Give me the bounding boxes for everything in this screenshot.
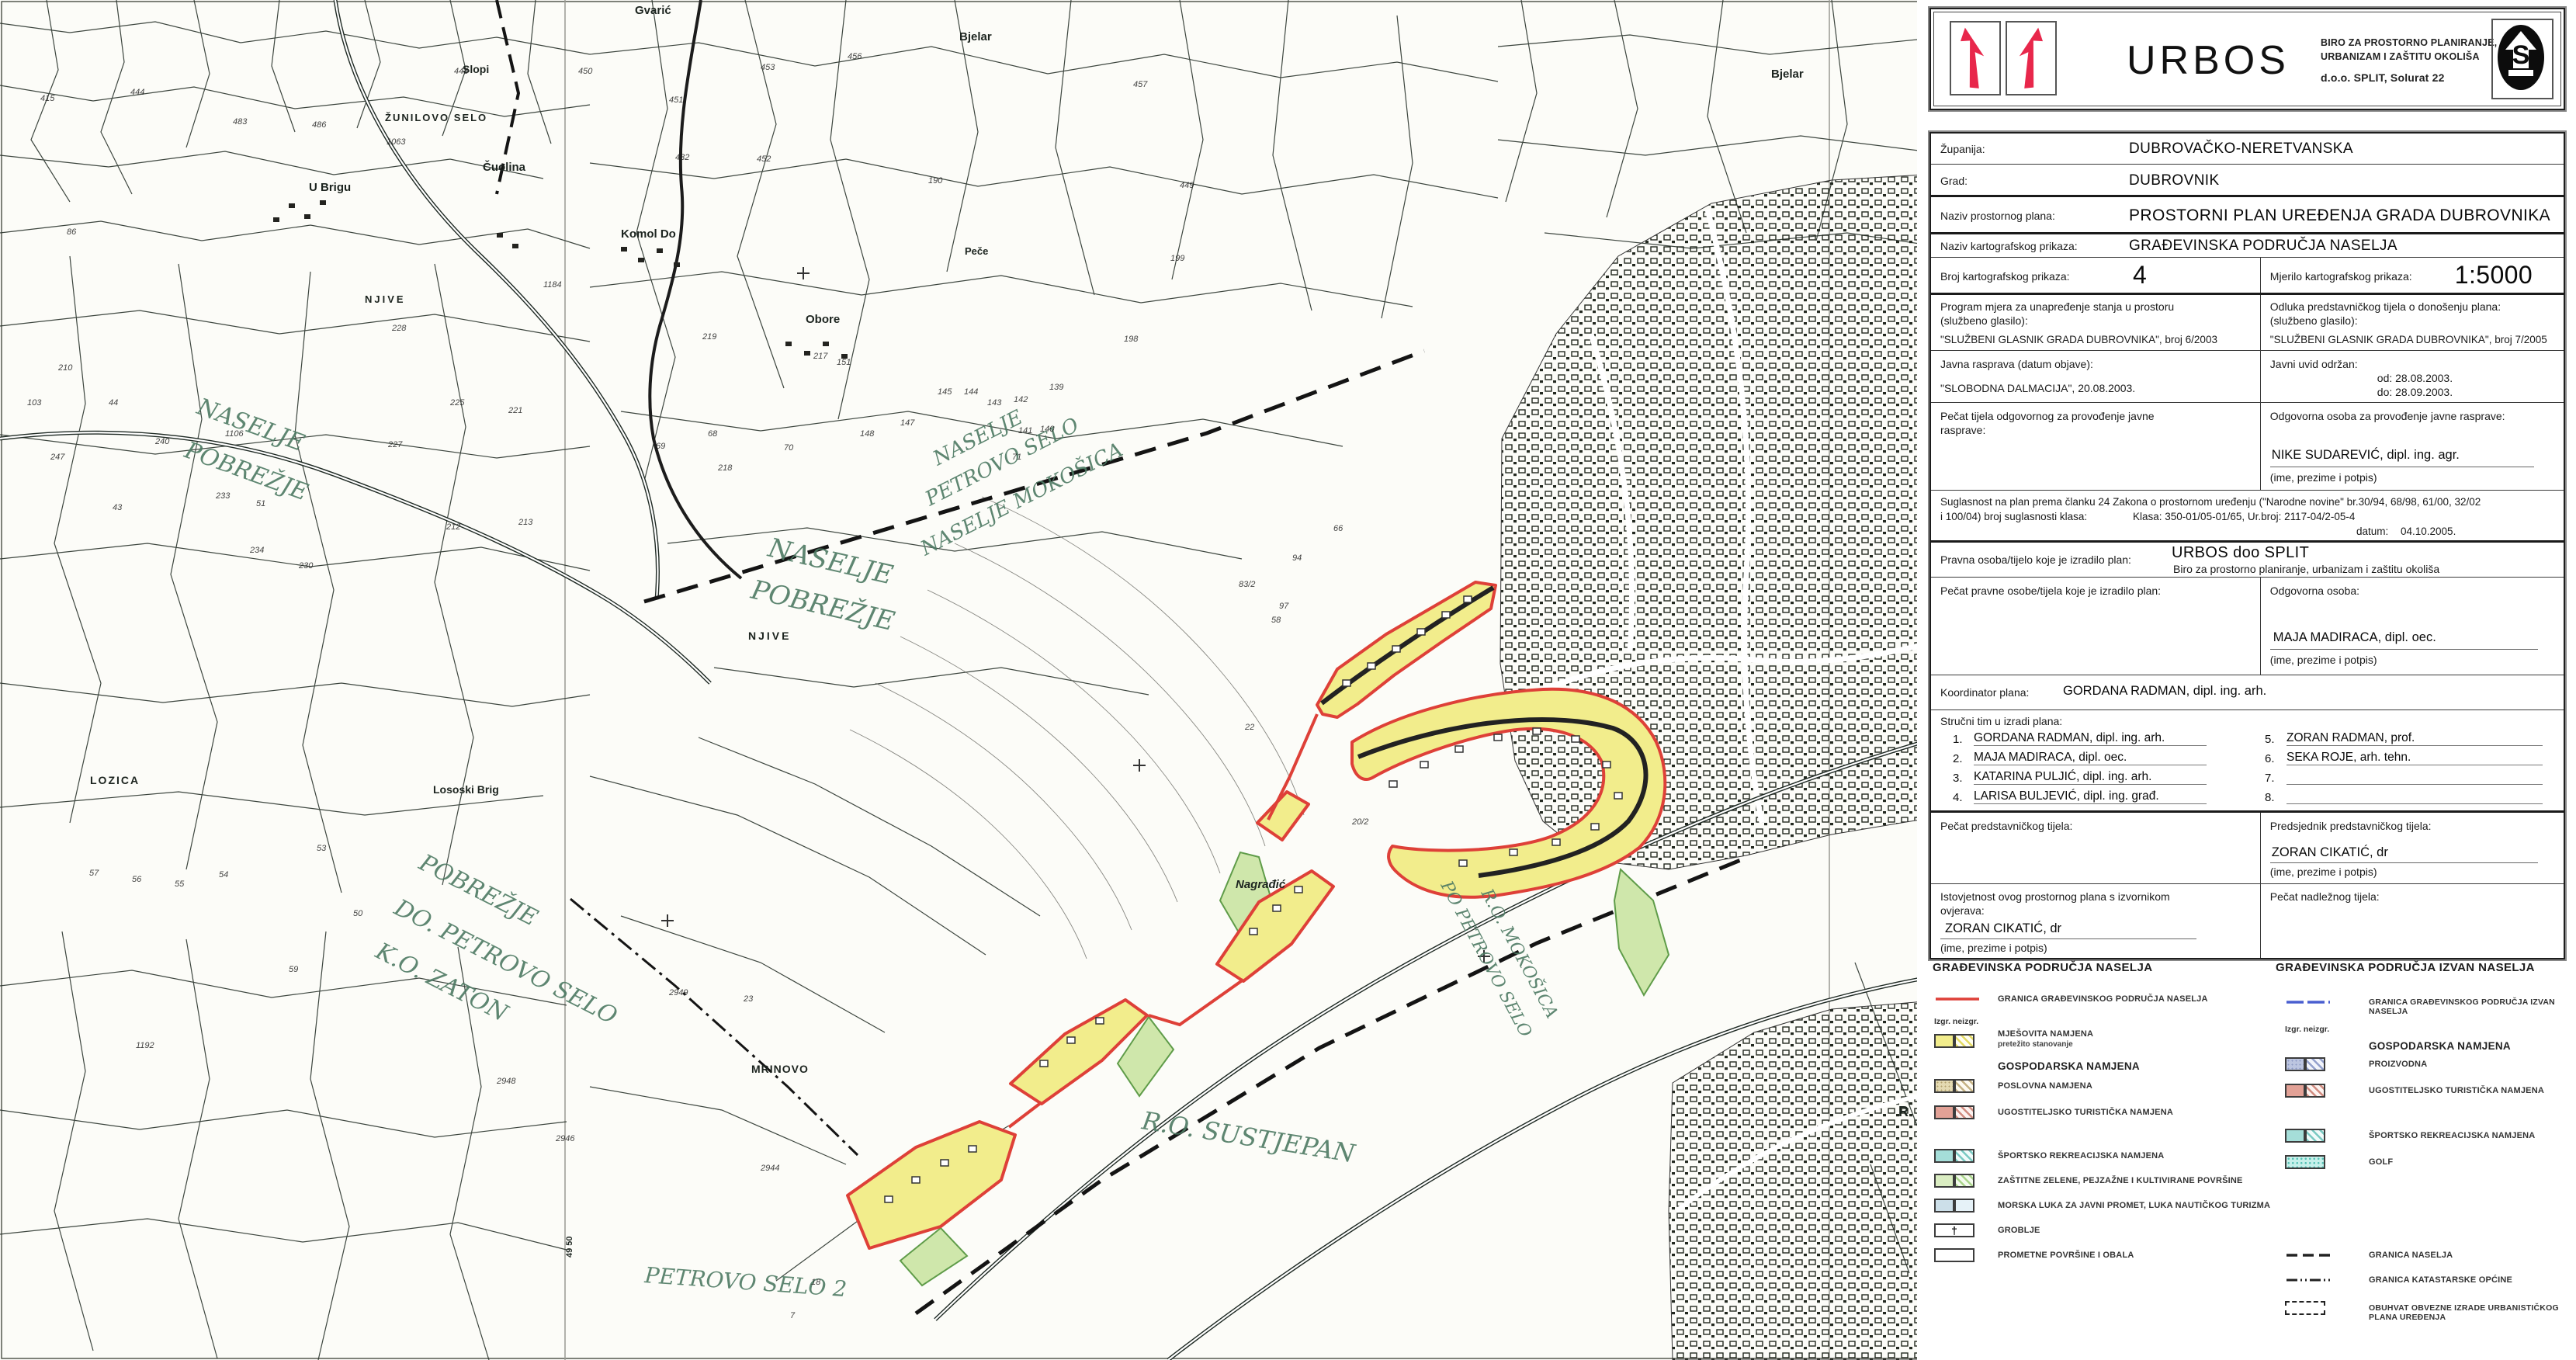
company-seal: S bbox=[2491, 19, 2553, 99]
parcel-number: 1184 bbox=[543, 280, 562, 290]
row-istovjetnost: Istovjetnost ovog prostornog plana s izv… bbox=[1931, 884, 2564, 958]
tim-num: 7. bbox=[2265, 772, 2275, 785]
parcel-number: 444 bbox=[130, 88, 144, 97]
istovjetnost-label2: ovjerava: bbox=[1940, 904, 1985, 917]
parcel-number: 456 bbox=[848, 52, 862, 61]
rasprava-value: "SLOBODNA DALMACIJA", 20.08.2003. bbox=[1940, 382, 2135, 394]
row-zupanija: Županija: DUBROVAČKO-NERETVANSKA bbox=[1931, 134, 2564, 165]
parcel-number: 58 bbox=[1271, 616, 1281, 625]
company-sub2: URBANIZAM I ZAŠTITU OKOLIŠA bbox=[2321, 51, 2480, 62]
parcel-number: 234 bbox=[249, 546, 264, 555]
parcel-number: 199 bbox=[1170, 254, 1184, 263]
parcel-number: 483 bbox=[233, 117, 248, 127]
legend-blue-line-swatch bbox=[2285, 998, 2332, 1006]
tim-num: 8. bbox=[2265, 791, 2275, 804]
plan-sheet: Gvarić Bjelar Bjelar U Brigu Slopi Čuoli… bbox=[0, 0, 2576, 1360]
suglasnost-datum-label: datum: bbox=[2356, 526, 2388, 537]
row-pecat-tijela: Pečat tijela odgovornog za provođenje ja… bbox=[1931, 403, 2564, 491]
parcel-number: 230 bbox=[298, 561, 314, 571]
logo-arrow-box-right bbox=[2006, 21, 2057, 95]
map-label: Lososki Brig bbox=[433, 783, 499, 796]
parcel-number: 147 bbox=[900, 418, 915, 428]
arrow-up-left-icon bbox=[1951, 23, 1996, 91]
signature-line bbox=[2270, 467, 2534, 467]
tim-name: KATARINA PULJIĆ, dipl. ing. arh. bbox=[1974, 770, 2207, 785]
pravna-value2: Biro za prostorno planiranje, urbanizam … bbox=[2173, 563, 2439, 575]
parcel-number: 56 bbox=[132, 875, 142, 884]
map-label: Peče bbox=[965, 245, 988, 257]
parcel-number: 97 bbox=[1279, 602, 1289, 611]
swatch-prometne bbox=[1934, 1248, 1974, 1262]
legend-golf-label: GOLF bbox=[2369, 1157, 2393, 1167]
parcel-number: 66 bbox=[1333, 524, 1343, 533]
swatch-morska-2 bbox=[1954, 1199, 1974, 1213]
parcel-number: 71 bbox=[1012, 453, 1021, 462]
map-label: NJIVE bbox=[365, 293, 406, 305]
swatch-mjesovita-izgr bbox=[1934, 1034, 1954, 1048]
cell-mjerilo: Mjerilo kartografskog prikaza: 1:5000 bbox=[2260, 258, 2564, 293]
koordinator-value: GORDANA RADMAN, dipl. ing. arh. bbox=[2063, 684, 2266, 699]
parcel-number: 57 bbox=[89, 869, 99, 878]
swatch-poslovna-izgr bbox=[1934, 1079, 1954, 1093]
parcel-number: 50 bbox=[353, 909, 363, 918]
grad-value: DUBROVNIK bbox=[2129, 172, 2220, 189]
koordinator-label: Koordinator plana: bbox=[1940, 686, 2029, 699]
parcel-number: 415 bbox=[40, 94, 55, 103]
row-pecat-predstavnickog: Pečat predstavničkog tijela: Predsjednik… bbox=[1931, 813, 2564, 884]
row-suglasnost: Suglasnost na plan prema članku 24 Zakon… bbox=[1931, 491, 2564, 543]
parcel-number: 448 bbox=[454, 67, 469, 76]
parcel-number: 53 bbox=[317, 844, 327, 853]
uvid-do: do: 28.09.2003. bbox=[2377, 386, 2453, 398]
odg-osoba-name: NIKE SUDAREVIĆ, dipl. ing. agr. bbox=[2272, 448, 2460, 463]
parcel-number: 225 bbox=[449, 398, 465, 408]
cell-pecat-nadleznog: Pečat nadležnog tijela: bbox=[2260, 884, 2564, 958]
signature-line bbox=[1940, 938, 2196, 939]
title-block-form: Županija: DUBROVAČKO-NERETVANSKA Grad: D… bbox=[1929, 132, 2565, 959]
tim-name: ZORAN RADMAN, prof. bbox=[2287, 731, 2543, 746]
signature-line bbox=[2270, 649, 2538, 650]
legend-zastitne-label: ZAŠTITNE ZELENE, PEJZAŽNE I KULTIVIRANE … bbox=[1998, 1176, 2243, 1185]
parcel-number: 144 bbox=[964, 387, 978, 397]
cell-predsjednik: Predsjednik predstavničkog tijela: ZORAN… bbox=[2260, 813, 2564, 883]
parcel-number: 2946 bbox=[555, 1134, 575, 1143]
legend-sportsko2-label: ŠPORTSKO REKREACIJSKA NAMJENA bbox=[2369, 1131, 2535, 1140]
parcel-number: 219 bbox=[702, 332, 716, 342]
tim-name: LARISA BULJEVIĆ, dipl. ing. građ. bbox=[1974, 789, 2207, 804]
legend-sportsko-label: ŠPORTSKO REKREACIJSKA NAMJENA bbox=[1998, 1151, 2164, 1161]
map-label: Komol Do bbox=[621, 227, 676, 241]
tim-num: 3. bbox=[1953, 772, 1963, 785]
legend-granica-naselja2-label: GRANICA NASELJA bbox=[2369, 1251, 2453, 1260]
legend-granica-naselja-line bbox=[2285, 1251, 2332, 1259]
legend-ugostiteljsko-label: UGOSTITELJSKO TURISTIČKA NAMJENA bbox=[1998, 1108, 2173, 1117]
map-label: 49 50 bbox=[565, 1236, 574, 1258]
odluka-label2: (službeno glasilo): bbox=[2270, 314, 2358, 327]
parcel-number: 1063 bbox=[387, 137, 406, 147]
zupanija-label: Županija: bbox=[1940, 143, 1985, 155]
pecat-nadleznog-label: Pečat nadležnog tijela: bbox=[2270, 890, 2380, 903]
swatch-golf bbox=[2285, 1155, 2325, 1169]
parcel-number: 2944 bbox=[760, 1164, 779, 1173]
legend-right-title: GRAĐEVINSKA PODRUČJA IZVAN NASELJA bbox=[2276, 961, 2535, 974]
parcel-number: 148 bbox=[860, 429, 875, 439]
parcel-number: 247 bbox=[50, 453, 65, 462]
parcel-number: 217 bbox=[813, 352, 828, 361]
parcel-number: 145 bbox=[938, 387, 952, 397]
uvid-od: od: 28.08.2003. bbox=[2377, 372, 2453, 384]
legend-red-line-swatch bbox=[1934, 995, 1981, 1003]
legend-prometne-label: PROMETNE POVRŠINE I OBALA bbox=[1998, 1251, 2134, 1260]
parcel-number: 450 bbox=[578, 67, 593, 76]
legend-granica-naselja-label: GRANICA GRAĐEVINSKOG PODRUČJA NASELJA bbox=[1998, 994, 2208, 1004]
sign-hint: (ime, prezime i potpis) bbox=[2270, 471, 2377, 484]
swatch-groblje-cross-icon: † bbox=[1934, 1223, 1974, 1237]
pravna-value1: URBOS doo SPLIT bbox=[2172, 544, 2309, 562]
predsjednik-name: ZORAN CIKATIĆ, dr bbox=[2272, 845, 2388, 860]
parcel-number: 486 bbox=[312, 120, 327, 130]
parcel-number: 212 bbox=[446, 522, 460, 532]
program-value: "SLUŽBENI GLASNIK GRADA DUBROVNIKA", bro… bbox=[1940, 334, 2217, 345]
rasprava-label: Javna rasprava (datum objave): bbox=[1940, 358, 2093, 370]
legend-groblje-label: GROBLJE bbox=[1998, 1226, 2040, 1235]
map-canvas: Gvarić Bjelar Bjelar U Brigu Slopi Čuoli… bbox=[0, 0, 1925, 1360]
legend-mjesovita-label: MJEŠOVITA NAMJENA bbox=[1998, 1029, 2093, 1039]
parcel-number: 141 bbox=[1018, 426, 1032, 435]
parcel-number: 7 bbox=[790, 1311, 796, 1320]
logo-header: URBOS BIRO ZA PROSTORNO PLANIRANJE, URBA… bbox=[1929, 8, 2565, 110]
row-strucni-tim: Stručni tim u izradi plana: 1. GORDANA R… bbox=[1931, 710, 2564, 813]
istovjetnost-name: ZORAN CIKATIĆ, dr bbox=[1945, 921, 2061, 936]
tim-label: Stručni tim u izradi plana: bbox=[1940, 715, 2062, 727]
sign-hint: (ime, prezime i potpis) bbox=[2270, 866, 2377, 878]
naziv-prikaza-value: GRAĐEVINSKA PODRUČJA NASELJA bbox=[2129, 238, 2397, 255]
tim-name bbox=[2287, 789, 2543, 804]
swatch-morska-1 bbox=[1934, 1199, 1954, 1213]
parcel-number: 218 bbox=[717, 463, 733, 473]
parcel-number: 68 bbox=[708, 429, 718, 439]
odgovorna-label: Odgovorna osoba: bbox=[2270, 585, 2359, 597]
parcel-number: 94 bbox=[1292, 553, 1302, 563]
map-label: R bbox=[1898, 1104, 1909, 1119]
tim-num: 1. bbox=[1953, 733, 1963, 746]
tim-name: SEKA ROJE, arh. tehn. bbox=[2287, 751, 2543, 765]
map-label: Nagrađić bbox=[1236, 878, 1286, 891]
legend-obuhvat-swatch bbox=[2285, 1301, 2325, 1315]
row-broj-mjerilo: Broj kartografskog prikaza: 4 Mjerilo ka… bbox=[1931, 258, 2564, 295]
company-sub3: d.o.o. SPLIT, Solurat 22 bbox=[2321, 71, 2445, 84]
parcel-number: 22 bbox=[1244, 723, 1254, 732]
pravna-label: Pravna osoba/tijelo koje je izradilo pla… bbox=[1940, 553, 2131, 566]
odluka-value: "SLUŽBENI GLASNIK GRADA DUBROVNIKA", bro… bbox=[2270, 334, 2547, 345]
uvid-label: Javni uvid održan: bbox=[2270, 358, 2358, 370]
swatch-ugostiteljsko-izgr bbox=[1934, 1105, 1954, 1119]
map-label: MRINOVO bbox=[751, 1063, 809, 1075]
legend-morska-label: MORSKA LUKA ZA JAVNI PROMET, LUKA NAUTIČ… bbox=[1998, 1201, 2270, 1210]
legend-proizvodna-label: PROIZVODNA bbox=[2369, 1060, 2427, 1069]
zupanija-value: DUBROVAČKO-NERETVANSKA bbox=[2129, 141, 2353, 158]
parcel-number: 103 bbox=[27, 398, 42, 408]
cell-odg-osoba: Odgovorna osoba za provođenje javne rasp… bbox=[2260, 403, 2564, 490]
parcel-number: 70 bbox=[784, 443, 794, 453]
naziv-plana-label: Naziv prostornog plana: bbox=[1940, 210, 2055, 222]
parcel-number: 240 bbox=[154, 437, 170, 446]
swatch-poslovna-neizgr bbox=[1954, 1079, 1974, 1093]
map-label: LOZICA bbox=[90, 774, 140, 786]
parcel-number: 228 bbox=[391, 324, 407, 333]
tim-name: MAJA MADIRACA, dipl. oec. bbox=[1974, 751, 2207, 765]
parcel-number: 233 bbox=[215, 491, 231, 501]
broj-value: 4 bbox=[2133, 261, 2147, 290]
company-name: URBOS bbox=[2127, 37, 2290, 84]
grad-label: Grad: bbox=[1940, 175, 1968, 187]
map-label: Bjelar bbox=[959, 30, 992, 43]
parcel-number: 54 bbox=[219, 870, 228, 879]
parcel-number: 451 bbox=[669, 95, 683, 105]
parcel-number: 143 bbox=[987, 398, 1002, 408]
map-label: Bjelar bbox=[1771, 68, 1804, 81]
parcel-number: 457 bbox=[1133, 80, 1148, 89]
pecat-pred-label: Pečat predstavničkog tijela: bbox=[1940, 820, 2072, 832]
row-koordinator: Koordinator plana: GORDANA RADMAN, dipl.… bbox=[1931, 675, 2564, 710]
parcel-number: 139 bbox=[1049, 383, 1063, 392]
company-sub1: BIRO ZA PROSTORNO PLANIRANJE, bbox=[2321, 37, 2497, 48]
program-label1: Program mjera za unapređenje stanja u pr… bbox=[1940, 300, 2174, 313]
parcel-number: 190 bbox=[928, 176, 943, 186]
map-label: NJIVE bbox=[748, 630, 791, 642]
legend-granica-ko-label: GRANICA KATASTARSKE OPĆINE bbox=[2369, 1275, 2512, 1285]
pecat-pravne-label: Pečat pravne osobe/tijela koje je izradi… bbox=[1940, 585, 2161, 597]
odluka-label1: Odluka predstavničkog tijela o donošenju… bbox=[2270, 300, 2501, 313]
parcel-number: 453 bbox=[761, 63, 775, 72]
title-block-panel: URBOS BIRO ZA PROSTORNO PLANIRANJE, URBA… bbox=[1917, 0, 2576, 1360]
parcel-number: 452 bbox=[757, 154, 771, 164]
swatch-zastitne-neizgr bbox=[1954, 1174, 1974, 1188]
swatch-sportsko2-izgr bbox=[2285, 1129, 2305, 1143]
tim-name bbox=[2287, 770, 2543, 785]
suglasnost-datum: 04.10.2005. bbox=[2401, 526, 2456, 537]
legend-right-colhead: Izgr. neizgr. bbox=[2285, 1025, 2329, 1034]
tim-name: GORDANA RADMAN, dipl. ing. arh. bbox=[1974, 731, 2207, 746]
swatch-ugostiteljsko2-izgr bbox=[2285, 1084, 2305, 1098]
arrow-up-right-icon bbox=[2007, 23, 2052, 91]
istovjetnost-label1: Istovjetnost ovog prostornog plana s izv… bbox=[1940, 890, 2170, 903]
parcel-number: 198 bbox=[1124, 335, 1139, 344]
parcel-number: 1106 bbox=[225, 429, 244, 439]
seal-icon: S bbox=[2493, 20, 2549, 95]
suglasnost-klasa: Klasa: 350-01/05-01/65, Ur.broj: 2117-04… bbox=[2133, 511, 2355, 522]
mjerilo-value: 1:5000 bbox=[2455, 261, 2533, 290]
parcel-number: 86 bbox=[67, 227, 77, 237]
parcel-number: 20/2 bbox=[1351, 817, 1368, 827]
naziv-plana-value: PROSTORNI PLAN UREĐENJA GRADA DUBROVNIKA bbox=[2129, 206, 2550, 225]
suglasnost-line2: i 100/04) broj suglasnosti klasa: bbox=[1940, 511, 2087, 522]
map-label: ŽUNILOVO SELO bbox=[385, 112, 487, 123]
parcel-number: 227 bbox=[387, 440, 403, 449]
svg-text:S: S bbox=[2512, 40, 2530, 70]
parcel-number: 43 bbox=[113, 503, 123, 512]
swatch-zastitne-izgr bbox=[1934, 1174, 1954, 1188]
parcel-number: 59 bbox=[289, 965, 298, 974]
legend-ugostiteljsko2-label: UGOSTITELJSKO TURISTIČKA NAMJENA bbox=[2369, 1086, 2544, 1095]
tim-num: 5. bbox=[2265, 733, 2275, 746]
pecat-tijela-label1: Pečat tijela odgovornog za provođenje ja… bbox=[1940, 410, 2155, 422]
legend-granica-izvan-label: GRANICA GRAĐEVINSKOG PODRUČJA IZVAN NASE… bbox=[2369, 997, 2576, 1016]
cell-uvid: Javni uvid održan: od: 28.08.2003. do: 2… bbox=[2260, 351, 2564, 402]
parcel-number: 142 bbox=[1014, 395, 1028, 404]
parcel-number: 210 bbox=[57, 363, 73, 373]
program-label2: (službeno glasilo): bbox=[1940, 314, 2028, 327]
swatch-ugostiteljsko-neizgr bbox=[1954, 1105, 1974, 1119]
parcel-number: 221 bbox=[508, 406, 522, 415]
row-program-odluka: Program mjera za unapređenje stanja u pr… bbox=[1931, 295, 2564, 351]
cell-odluka: Odluka predstavničkog tijela o donošenju… bbox=[2260, 295, 2564, 350]
legend-obuhvat-label: OBUHVAT OBVEZNE IZRADE URBANISTIČKOG PLA… bbox=[2369, 1303, 2576, 1322]
tim-num: 4. bbox=[1953, 791, 1963, 804]
odgovorna-name: MAJA MADIRACA, dipl. oec. bbox=[2273, 630, 2436, 645]
map-label: Čuolina bbox=[483, 160, 526, 174]
row-pecat-pravne: Pečat pravne osobe/tijela koje je izradi… bbox=[1931, 578, 2564, 675]
legend-left-gospodarska-head: GOSPODARSKA NAMJENA bbox=[1998, 1060, 2140, 1072]
swatch-sportsko-izgr bbox=[1934, 1149, 1954, 1163]
row-naziv-prikaza: Naziv kartografskog prikaza: GRAĐEVINSKA… bbox=[1931, 234, 2564, 258]
legend-left-title: GRAĐEVINSKA PODRUČJA NASELJA bbox=[1933, 961, 2152, 974]
cell-odgovorna: Odgovorna osoba: MAJA MADIRACA, dipl. oe… bbox=[2260, 578, 2564, 675]
swatch-proizvodna-neizgr bbox=[2305, 1057, 2325, 1071]
legend-mjesovita-sub: pretežito stanovanje bbox=[1998, 1040, 2073, 1049]
sign-hint: (ime, prezime i potpis) bbox=[1940, 942, 2047, 954]
row-pravna-osoba: Pravna osoba/tijelo koje je izradilo pla… bbox=[1931, 543, 2564, 578]
tim-num: 2. bbox=[1953, 752, 1963, 765]
parcel-number: 55 bbox=[175, 879, 185, 889]
mjerilo-label: Mjerilo kartografskog prikaza: bbox=[2270, 270, 2412, 283]
parcel-number: 213 bbox=[518, 518, 533, 527]
signature-line bbox=[2270, 862, 2538, 863]
swatch-sportsko2-neizgr bbox=[2305, 1129, 2325, 1143]
parcel-number: 23 bbox=[743, 994, 754, 1004]
pecat-tijela-label2: rasprave: bbox=[1940, 424, 1985, 436]
tim-num: 6. bbox=[2265, 752, 2275, 765]
suglasnost-line1: Suglasnost na plan prema članku 24 Zakon… bbox=[1940, 496, 2481, 508]
row-naziv-plana: Naziv prostornog plana: PROSTORNI PLAN U… bbox=[1931, 197, 2564, 234]
logo-arrow-box-left bbox=[1950, 21, 2001, 95]
row-rasprava-uvid: Javna rasprava (datum objave): "SLOBODNA… bbox=[1931, 351, 2564, 403]
legend-poslovna-label: POSLOVNA NAMJENA bbox=[1998, 1081, 2092, 1091]
parcel-number: 432 bbox=[675, 153, 689, 162]
legend-left-colhead: Izgr. neizgr. bbox=[1934, 1017, 1978, 1026]
parcel-number: 2949 bbox=[668, 988, 688, 997]
parcel-number: 1192 bbox=[136, 1041, 154, 1050]
row-grad: Grad: DUBROVNIK bbox=[1931, 165, 2564, 197]
parcel-number: 44 bbox=[109, 398, 118, 408]
swatch-mjesovita-neizgr bbox=[1954, 1034, 1974, 1048]
legend-right-gospodarska-head: GOSPODARSKA NAMJENA bbox=[2369, 1040, 2511, 1052]
broj-label: Broj kartografskog prikaza: bbox=[1940, 270, 2070, 283]
map-label: Gvarić bbox=[635, 4, 671, 17]
parcel-number: 51 bbox=[256, 499, 265, 508]
predsjednik-label: Predsjednik predstavničkog tijela: bbox=[2270, 820, 2432, 832]
parcel-number: 449 bbox=[1180, 181, 1194, 190]
parcel-number: 83/2 bbox=[1239, 580, 1255, 589]
odg-osoba-label: Odgovorna osoba za provođenje javne rasp… bbox=[2270, 410, 2505, 422]
naziv-prikaza-label: Naziv kartografskog prikaza: bbox=[1940, 240, 2078, 252]
parcel-number: 69 bbox=[656, 442, 665, 451]
parcel-number: 18 bbox=[811, 1278, 821, 1287]
swatch-sportsko-neizgr bbox=[1954, 1149, 1974, 1163]
legend-granica-ko-line bbox=[2285, 1276, 2332, 1284]
map-label: Obore bbox=[806, 313, 840, 326]
parcel-number: 151 bbox=[837, 358, 851, 367]
map-label: U Brigu bbox=[309, 181, 351, 194]
parcel-number: 2948 bbox=[496, 1077, 516, 1086]
swatch-proizvodna-izgr bbox=[2285, 1057, 2305, 1071]
swatch-ugostiteljsko2-neizgr bbox=[2305, 1084, 2325, 1098]
parcel-number: 140 bbox=[1040, 425, 1055, 434]
sign-hint: (ime, prezime i potpis) bbox=[2270, 654, 2377, 666]
